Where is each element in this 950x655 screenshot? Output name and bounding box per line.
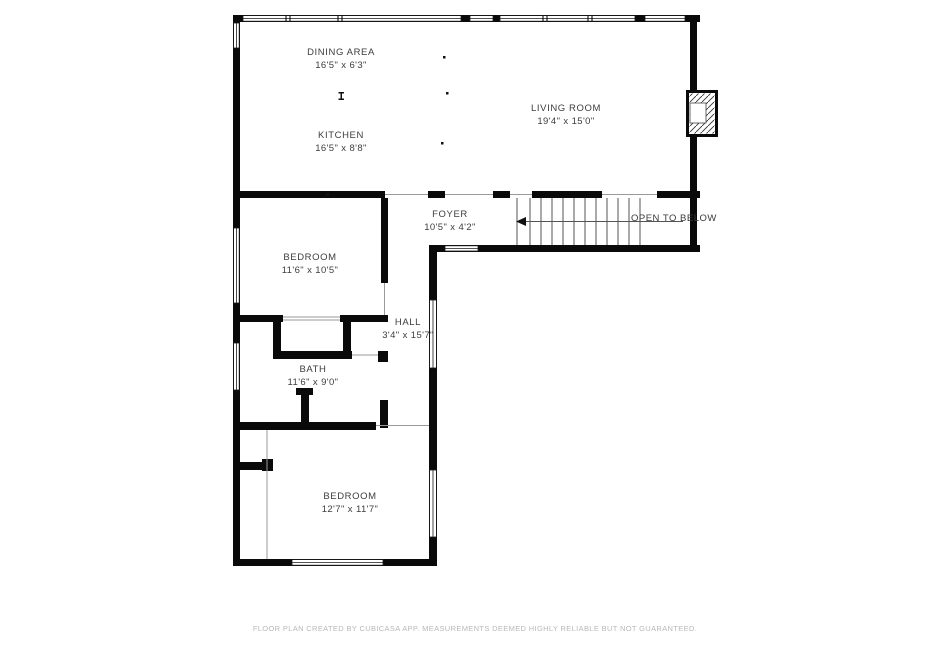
room-name: DINING AREA — [307, 46, 375, 59]
footer-disclaimer: FLOOR PLAN CREATED BY CUBICASA APP. MEAS… — [253, 624, 697, 633]
room-name: HALL — [382, 316, 434, 329]
reference-marks — [326, 56, 449, 196]
room-dims: 3'4" x 15'7" — [382, 329, 434, 342]
room-label-bath: BATH 11'6" x 9'0" — [288, 363, 339, 389]
dimension-mark — [339, 92, 345, 100]
floor-plan: DINING AREA 16'5" x 6'3" KITCHEN 16'5" x… — [0, 0, 950, 650]
room-dims: 19'4" x 15'0" — [531, 115, 601, 128]
room-label-hall: HALL 3'4" x 15'7" — [382, 316, 434, 342]
room-label-bedroom-2: BEDROOM 12'7" x 11'7" — [322, 490, 379, 516]
room-name: FOYER — [424, 208, 476, 221]
exterior-walls — [233, 15, 700, 566]
fireplace — [688, 92, 717, 136]
room-dims: 11'6" x 9'0" — [288, 376, 339, 389]
room-label-foyer: FOYER 10'5" x 4'2" — [424, 208, 476, 234]
windows — [234, 16, 685, 566]
room-label-living-room: LIVING ROOM 19'4" x 15'0" — [531, 102, 601, 128]
room-label-kitchen: KITCHEN 16'5" x 8'8" — [315, 129, 367, 155]
room-name: BEDROOM — [282, 251, 339, 264]
room-dims: 10'5" x 4'2" — [424, 221, 476, 234]
room-name: KITCHEN — [315, 129, 367, 142]
room-dims: 12'7" x 11'7" — [322, 503, 379, 516]
room-dims: 16'5" x 8'8" — [315, 142, 367, 155]
room-name: LIVING ROOM — [531, 102, 601, 115]
room-name: BATH — [288, 363, 339, 376]
floor-plan-drawing — [0, 0, 950, 650]
room-dims: 16'5" x 6'3" — [307, 59, 375, 72]
room-dims: 11'6" x 10'5" — [282, 264, 339, 277]
room-label-dining-area: DINING AREA 16'5" x 6'3" — [307, 46, 375, 72]
open-to-below-label: OPEN TO BELOW — [631, 213, 717, 224]
room-name: BEDROOM — [322, 490, 379, 503]
room-label-bedroom-1: BEDROOM 11'6" x 10'5" — [282, 251, 339, 277]
